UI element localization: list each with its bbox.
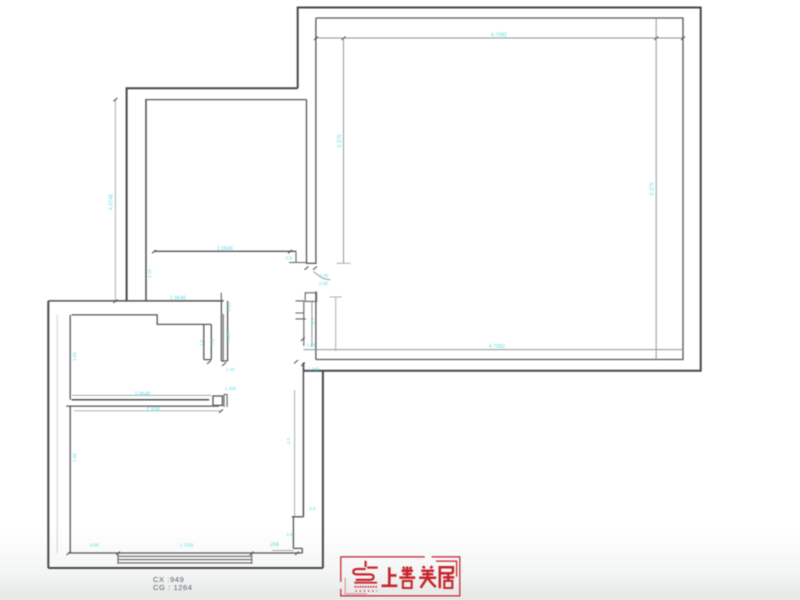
svg-text:4.0746: 4.0746: [109, 194, 115, 210]
svg-text:3.375: 3.375: [650, 182, 656, 195]
svg-text:1.36: 1.36: [226, 332, 231, 341]
svg-text:1.498: 1.498: [308, 366, 320, 371]
svg-text:1.405: 1.405: [225, 386, 237, 391]
svg-text:0.88: 0.88: [90, 542, 99, 547]
svg-text:2.9: 2.9: [286, 437, 291, 444]
svg-text:CG : 1264: CG : 1264: [153, 583, 193, 592]
svg-text:3.0646: 3.0646: [134, 392, 150, 398]
svg-text:1.3: 1.3: [199, 339, 204, 346]
svg-text:1.05: 1.05: [320, 273, 329, 278]
svg-text:0.9: 0.9: [310, 317, 315, 324]
svg-text:1.55: 1.55: [72, 352, 77, 361]
svg-text:1.4: 1.4: [210, 338, 215, 345]
svg-text:0.5: 0.5: [286, 532, 293, 537]
svg-text:3.375: 3.375: [337, 134, 343, 147]
svg-text:0.70: 0.70: [270, 542, 279, 547]
svg-text:1.40: 1.40: [226, 367, 235, 372]
svg-text:0.92: 0.92: [227, 302, 232, 311]
svg-text:1.05: 1.05: [307, 343, 316, 348]
svg-text:0.85: 0.85: [319, 281, 328, 286]
svg-text:2.938: 2.938: [146, 407, 159, 413]
svg-text:4.7982: 4.7982: [491, 33, 507, 39]
svg-text:2.0646: 2.0646: [217, 246, 233, 252]
svg-text:0.9: 0.9: [286, 256, 293, 261]
svg-text:1.7226: 1.7226: [180, 542, 194, 547]
svg-text:2.66: 2.66: [72, 453, 77, 462]
svg-text:0.9: 0.9: [309, 506, 316, 511]
svg-text:1.9646: 1.9646: [170, 296, 186, 302]
svg-text:1.16: 1.16: [147, 269, 152, 278]
svg-text:4.7982: 4.7982: [489, 344, 505, 350]
